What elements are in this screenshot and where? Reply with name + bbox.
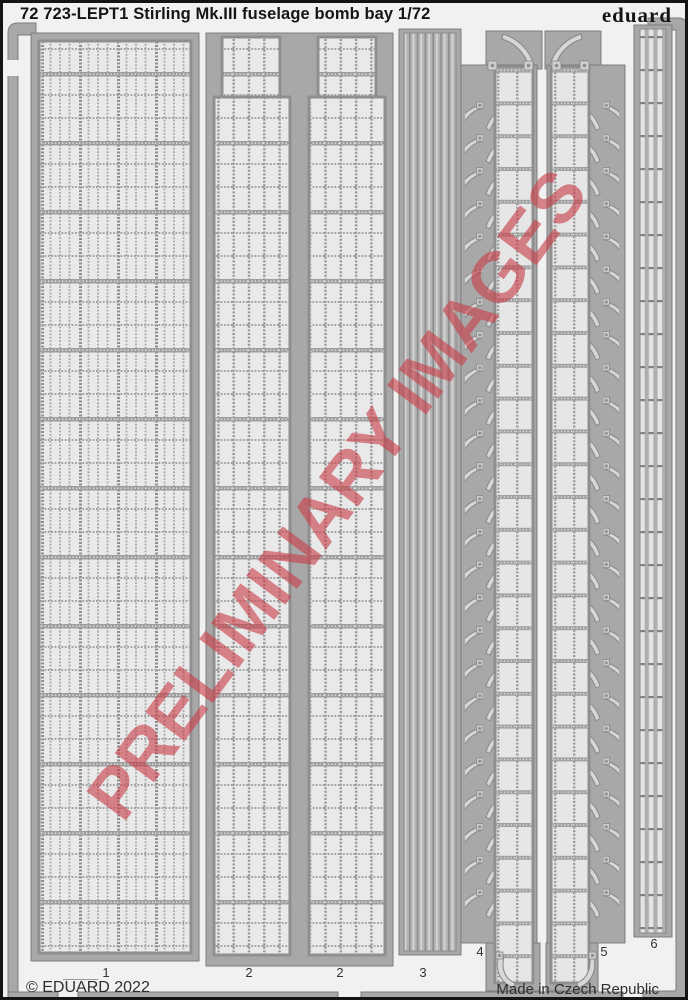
part-number-label: 4 [476,945,483,958]
part-6-slotted-strip [634,25,672,937]
sheet-title: 72 723-LEPT1 Stirling Mk.III fuselage bo… [20,5,430,24]
part-number-label: 5 [600,945,607,958]
part-3-grooved-strip [399,29,461,955]
part-number-label: 1 [102,966,109,979]
part-number-label: 2 [245,966,252,979]
made-in-text: Made in Czech Republic [496,981,659,998]
pe-sheet-page: 72 723-LEPT1 Stirling Mk.III fuselage bo… [0,0,688,1000]
part-number-label: 6 [650,937,657,950]
eduard-logo: eduard [602,3,672,28]
part-number-label: 2 [336,966,343,979]
part-number-label: 3 [419,966,426,979]
frame-notch [6,60,20,76]
copyright-text: © EDUARD 2022 [26,979,150,997]
